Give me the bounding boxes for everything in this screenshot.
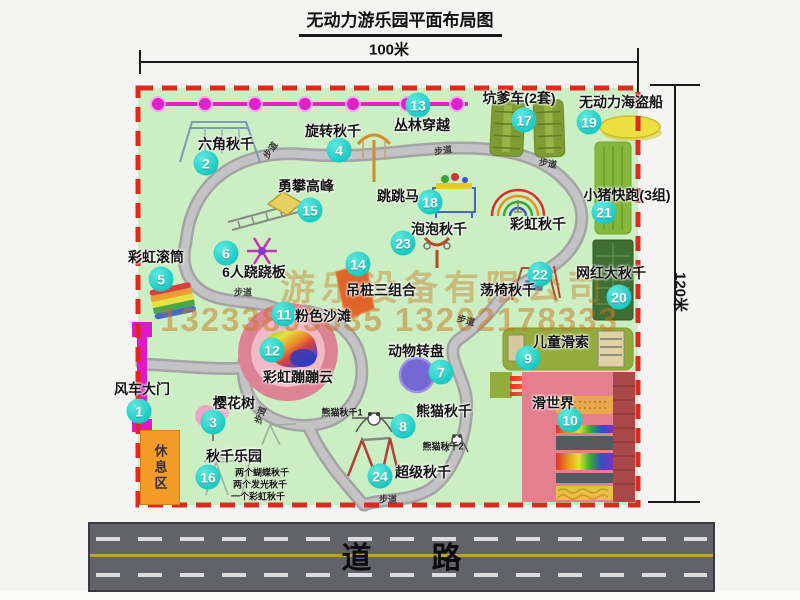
road: 道 路 [88,522,715,592]
pirate-ship-icon [600,116,662,141]
height-dimension-label: 120米 [671,272,692,312]
piggy-run-field [595,142,631,234]
rest-area: 休息区 [140,430,180,505]
slide-world-area [522,372,635,502]
park-map-screenshot: 无动力游乐园平面布局图 100米 120米 [0,0,800,600]
page-title: 无动力游乐园平面布局图 [0,6,800,37]
big-swing-field [593,240,633,320]
animal-carousel-icon [400,358,434,392]
title-text: 无动力游乐园平面布局图 [299,6,502,37]
width-dimension-label: 100米 [369,39,409,60]
road-label: 道 路 [90,533,713,577]
rest-area-label: 休息区 [151,444,170,492]
